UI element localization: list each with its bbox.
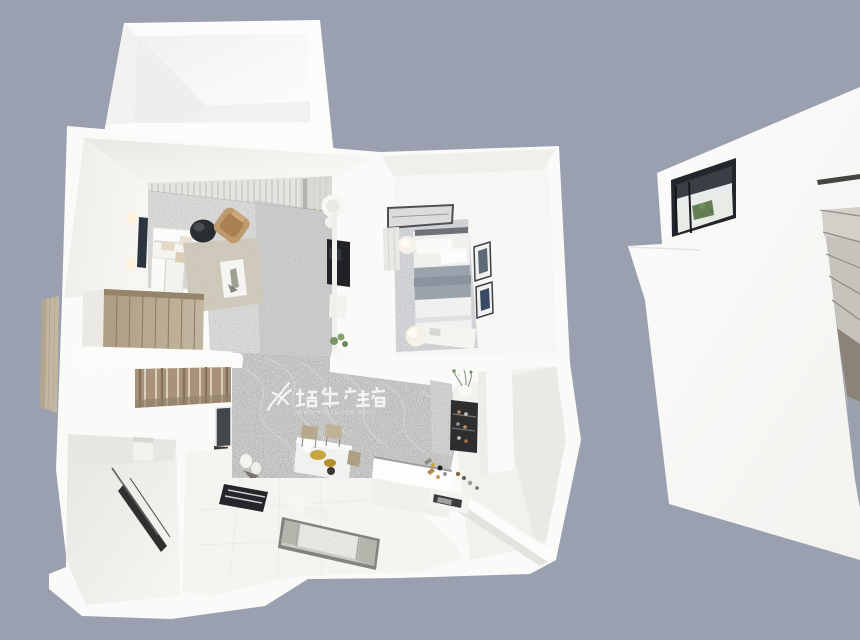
svg-text:WWW.HNCZS.COM DECO: WWW.HNCZS.COM DECO: [298, 410, 376, 416]
